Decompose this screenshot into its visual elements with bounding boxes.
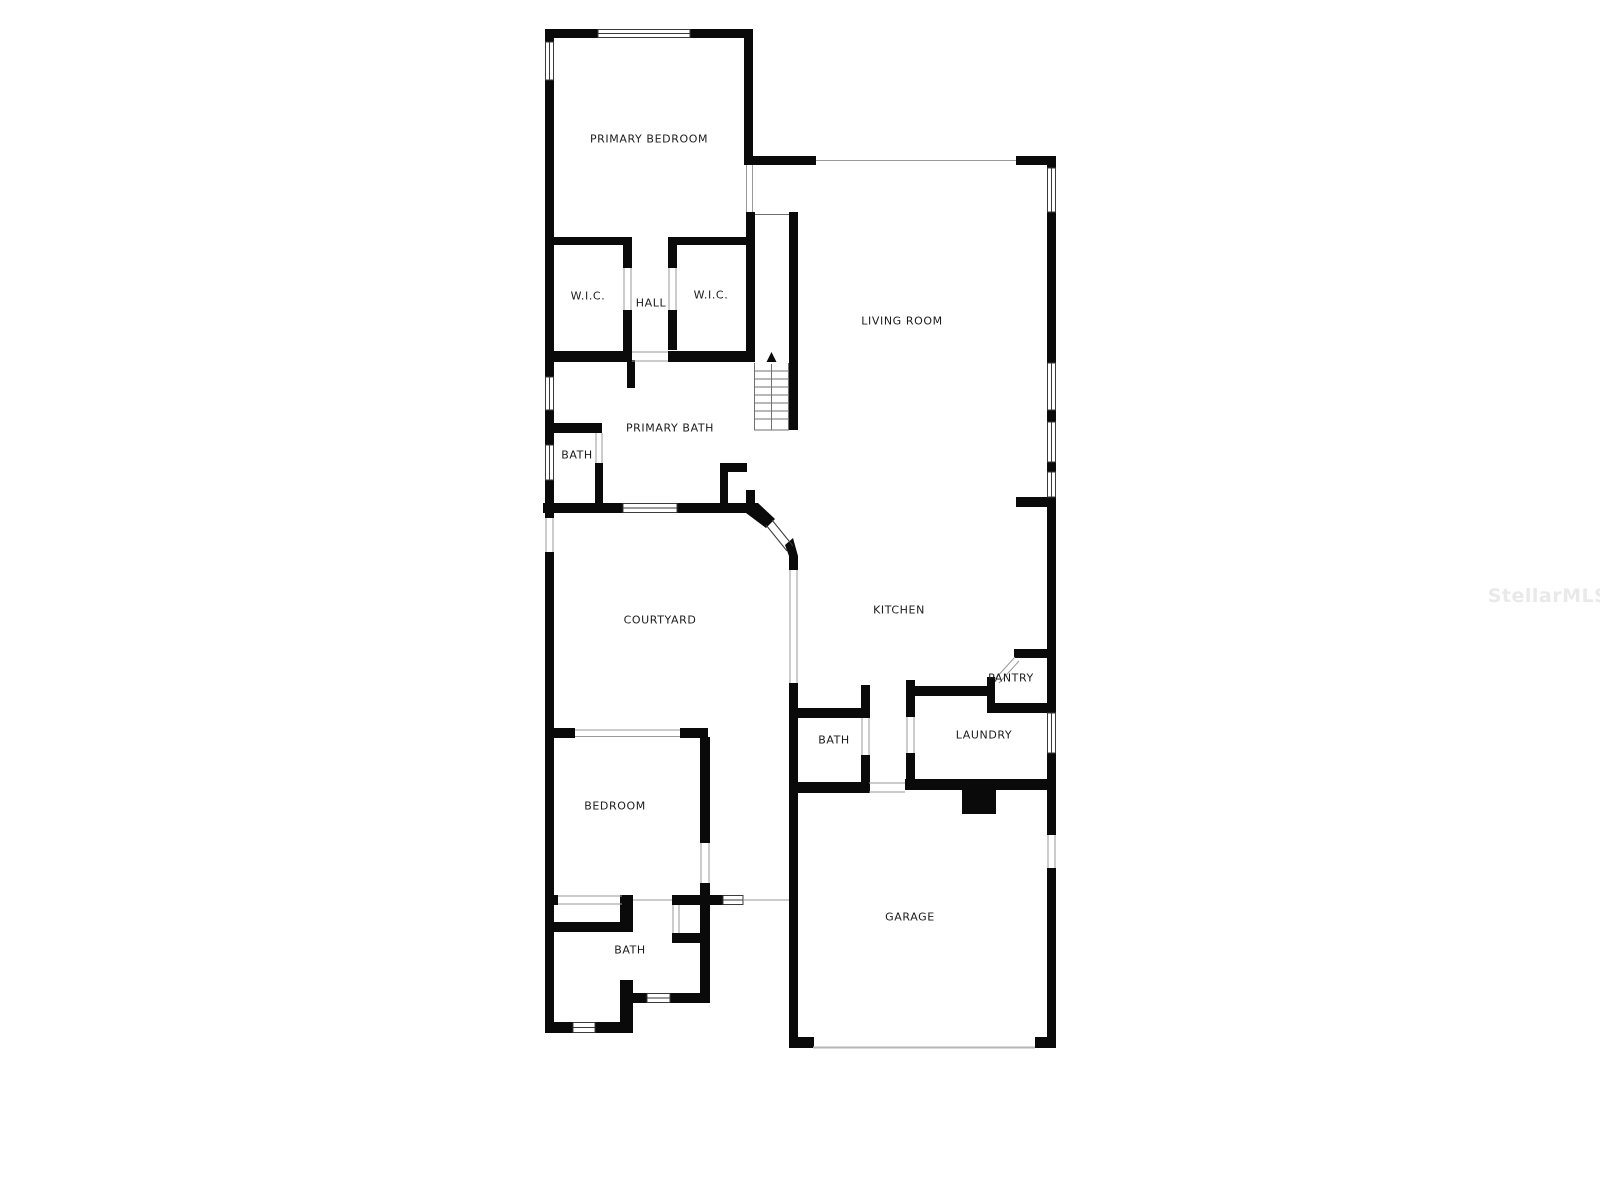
walls [543,29,1056,1048]
room-label-wic-right: W.I.C. [694,289,729,302]
room-label-laundry: LAUNDRY [956,729,1013,742]
room-label-bath-suite: BATH [561,449,593,462]
room-label-living-room: LIVING ROOM [861,315,942,328]
room-label-wic-left: W.I.C. [571,290,606,303]
room-label-garage: GARAGE [885,911,935,924]
room-label-primary-bedroom: PRIMARY BEDROOM [590,133,708,146]
equipment-box [962,790,996,814]
floorplan-drawing [0,0,1600,1200]
door-openings [546,161,1055,934]
room-label-primary-bath: PRIMARY BATH [626,422,714,435]
stellar-mls-watermark: StellarMLS [1488,585,1600,607]
room-label-bath-guest: BATH [614,944,646,957]
floorplan-page: PRIMARY BEDROOM W.I.C. HALL W.I.C. LIVIN… [0,0,1600,1200]
room-label-bedroom: BEDROOM [584,800,646,813]
room-label-pantry: PANTRY [988,672,1034,685]
room-label-hall: HALL [636,297,666,310]
windows [546,30,1056,1033]
room-label-bath-hall: BATH [818,734,850,747]
stairs [754,215,789,431]
room-label-courtyard: COURTYARD [624,614,697,627]
room-label-kitchen: KITCHEN [873,604,925,617]
stairs-up-arrow [767,352,777,362]
